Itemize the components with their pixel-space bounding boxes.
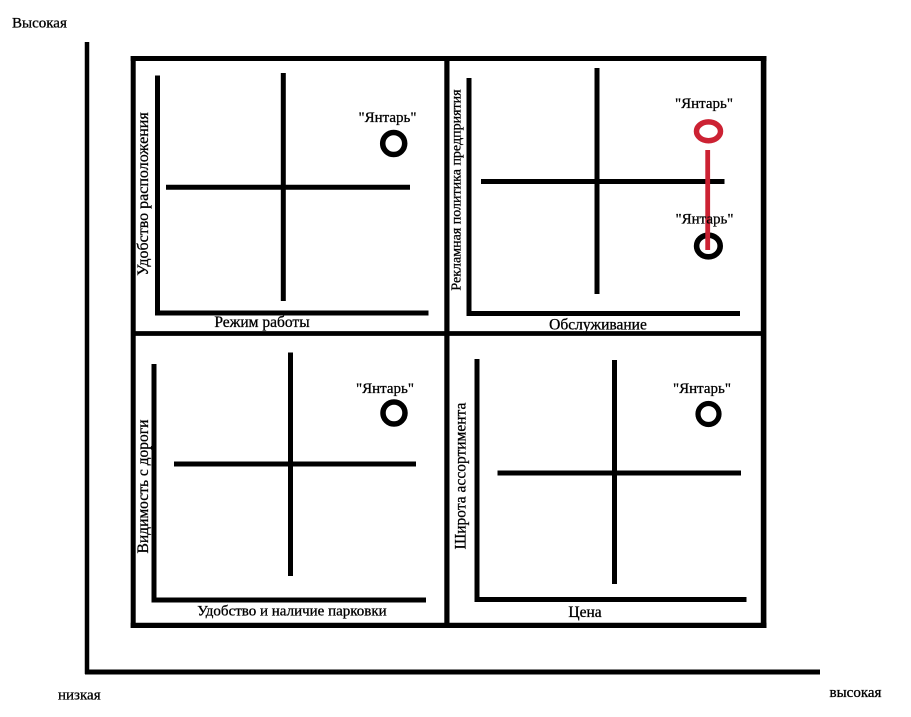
svg-text:"Янтарь": "Янтарь"	[675, 212, 733, 228]
svg-text:Высокая: Высокая	[12, 16, 67, 32]
svg-text:низкая: низкая	[58, 688, 101, 704]
svg-text:Удобство расположения: Удобство расположения	[135, 112, 152, 276]
svg-text:Цена: Цена	[568, 604, 601, 621]
svg-text:"Янтарь": "Янтарь"	[675, 96, 733, 112]
svg-text:Удобство и наличие парковки: Удобство и наличие парковки	[197, 604, 386, 620]
svg-text:высокая: высокая	[830, 685, 882, 701]
svg-text:"Янтарь": "Янтарь"	[358, 110, 416, 126]
svg-text:"Янтарь": "Янтарь"	[673, 381, 731, 397]
svg-text:Широта ассортимента: Широта ассортимента	[453, 402, 470, 549]
svg-text:Рекламная политика предприятия: Рекламная политика предприятия	[450, 89, 465, 291]
svg-text:Режим работы: Режим работы	[214, 314, 310, 331]
svg-text:"Янтарь": "Янтарь"	[356, 381, 414, 397]
svg-text:Видимость с дороги: Видимость с дороги	[135, 420, 152, 554]
svg-text:Обслуживание: Обслуживание	[549, 317, 647, 334]
